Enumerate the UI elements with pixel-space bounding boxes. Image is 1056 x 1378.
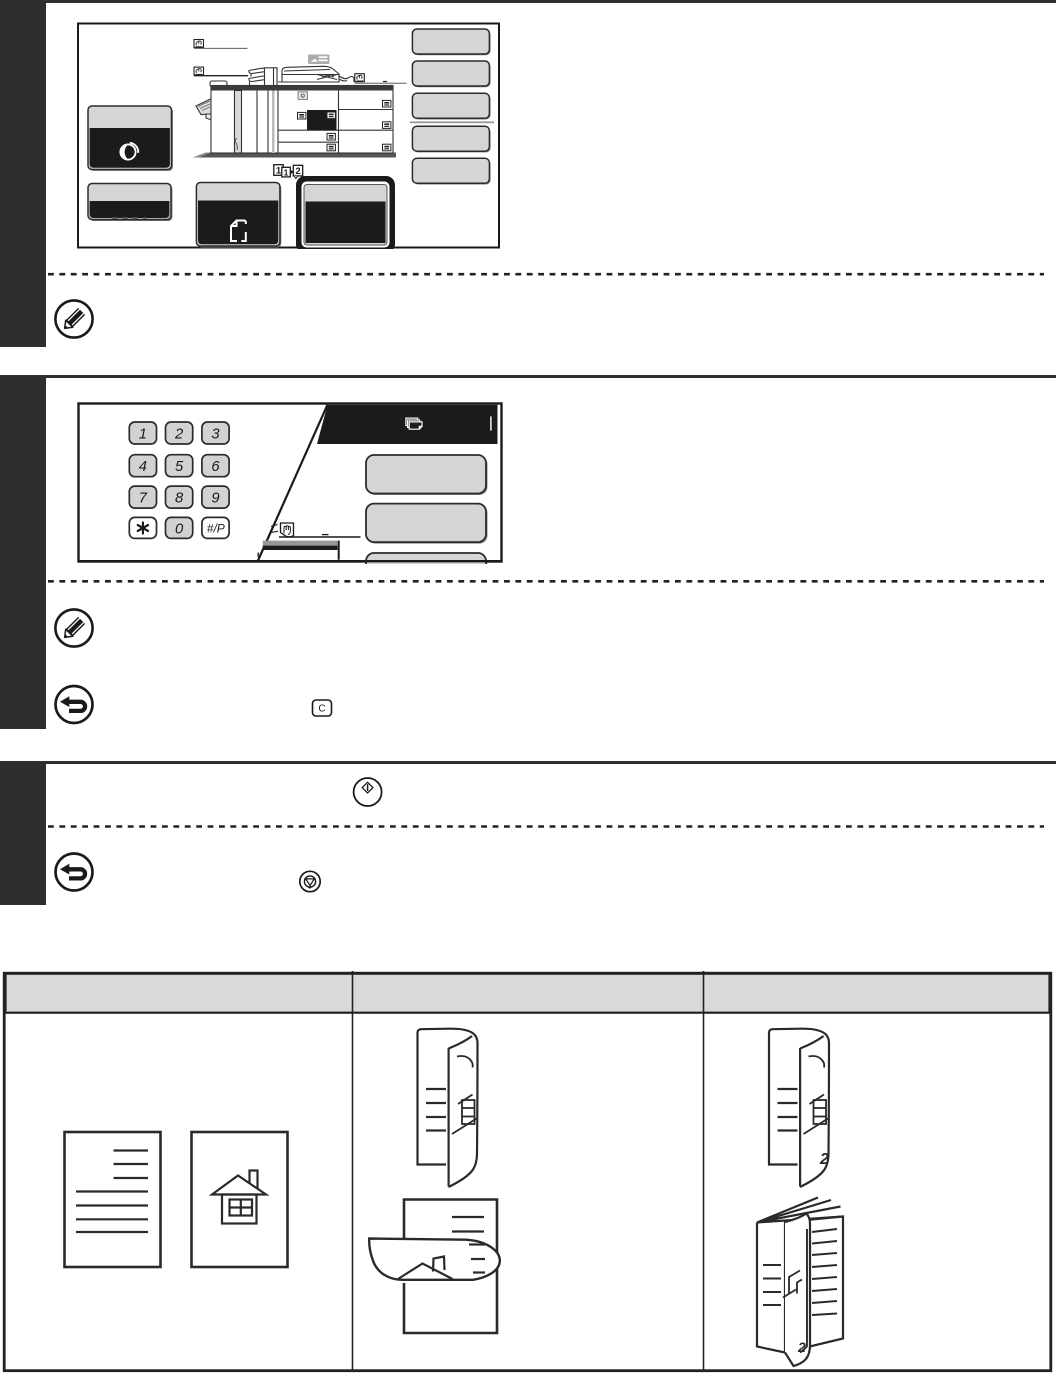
svg-text:2: 2 [797,1339,806,1355]
svg-text:C: C [318,704,325,715]
svg-text:2: 2 [819,1151,829,1168]
